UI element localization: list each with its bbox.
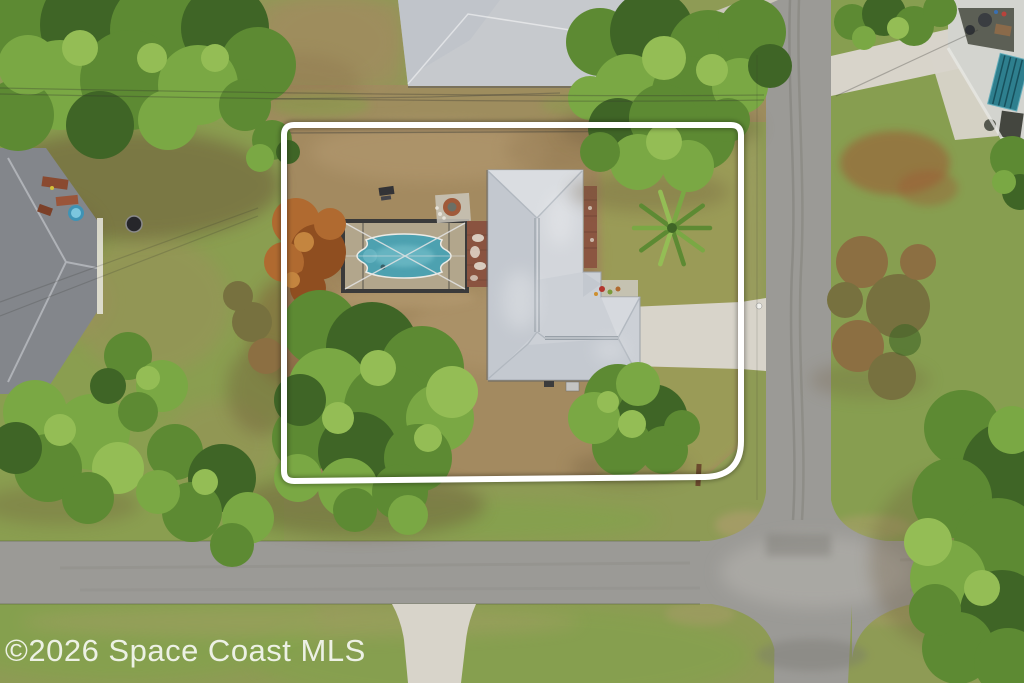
ac-unit: [566, 382, 579, 391]
trampoline: [126, 216, 142, 232]
aerial-photo: [0, 0, 1024, 683]
watermark: ©2026 Space Coast MLS: [5, 633, 366, 669]
subject-driveway: [630, 298, 766, 371]
porch-flowers: [599, 286, 605, 292]
aerial-photo-container: ©2026 Space Coast MLS: [0, 0, 1024, 683]
